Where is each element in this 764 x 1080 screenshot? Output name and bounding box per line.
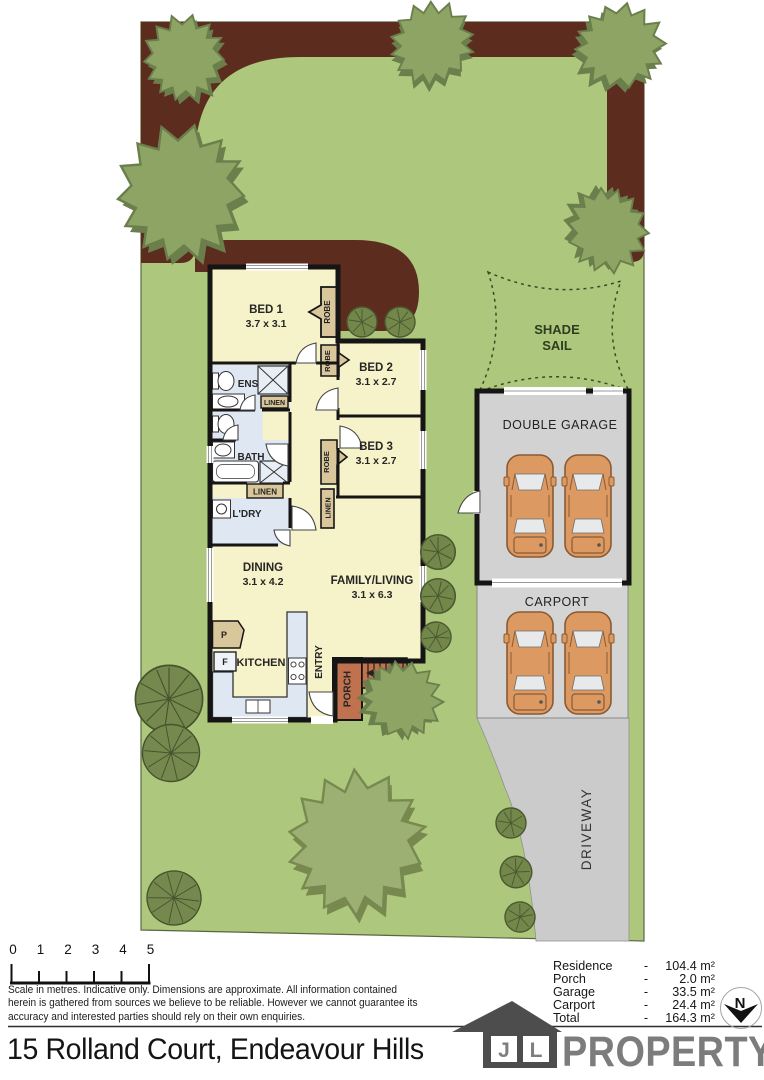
window (207, 446, 214, 463)
room-dims-family: 3.1 x 6.3 (352, 589, 393, 601)
front-door-gap (311, 716, 333, 724)
car-icon (504, 455, 556, 557)
car-icon (562, 612, 614, 714)
sink-icon (246, 700, 270, 713)
linen-label: LINEN (326, 498, 333, 519)
pantry-label: P (221, 630, 227, 640)
linen-laundry: LINEN (247, 484, 283, 498)
disclaimer-line: herein is gathered from sources we belie… (8, 997, 486, 1010)
basin-icon (213, 442, 235, 458)
room-label-porch: PORCH (343, 671, 354, 707)
bathtub-icon (213, 461, 259, 482)
room-dims-bed2: 3.1 x 2.7 (356, 376, 397, 388)
room-label-bed2: BED 2 (359, 362, 393, 374)
area-schedule: Residence - 104.4 m² Porch - 2.0 m² Gara… (553, 960, 715, 1025)
scale-tick-label: 2 (64, 942, 72, 957)
car-icon (504, 612, 556, 714)
disclaimer-line: Scale in metres. Indicative only. Dimens… (8, 984, 486, 997)
scale-tick-label: 0 (9, 942, 17, 957)
floorplan-page: SHADE SAIL DRIVEWAY CARPORT DOUBLE GARAG… (0, 0, 764, 1080)
room-dims-dining: 3.1 x 4.2 (243, 576, 284, 588)
room-label-kitchen: KITCHEN (237, 657, 286, 669)
site-plan-canvas: SHADE SAIL DRIVEWAY CARPORT DOUBLE GARAG… (0, 0, 764, 1080)
scale-bar: 0 1 2 3 4 5 (9, 942, 154, 983)
room-label-bath: BATH (237, 452, 264, 463)
room-label-family: FAMILY/LIVING (331, 575, 414, 587)
linen-label: LINEN (264, 400, 285, 407)
vanity-icon (213, 394, 245, 409)
pantry: P (213, 621, 245, 648)
linen-label: LINEN (253, 488, 277, 497)
garage-label: DOUBLE GARAGE (503, 418, 618, 432)
area-dash: - (639, 1012, 653, 1025)
logo-letter-l: L (530, 1039, 543, 1062)
shade-sail-label-line1: SHADE (534, 322, 580, 337)
scale-tick-label: 5 (147, 942, 155, 957)
disclaimer: Scale in metres. Indicative only. Dimens… (8, 984, 486, 1024)
logo-letter-j: J (498, 1039, 510, 1062)
robe-label: ROBE (322, 451, 331, 473)
room-label-ens: ENS (238, 379, 259, 390)
room-dims-bed1: 3.7 x 3.1 (246, 318, 287, 330)
round-tree-icon (135, 665, 202, 732)
scale-tick-label: 3 (92, 942, 100, 957)
linen-vertical: LINEN (321, 489, 334, 528)
toilet-icon (213, 372, 235, 391)
driveway-label: DRIVEWAY (579, 788, 594, 871)
shade-sail-label-line2: SAIL (542, 338, 572, 353)
fridge-label: F (222, 657, 228, 667)
shrub-icon (496, 808, 526, 838)
area-row: Total - 164.3 m² (553, 1012, 715, 1025)
shower-icon (258, 366, 288, 394)
robe-label: ROBE (323, 350, 332, 372)
area-value: 164.3 m² (653, 1012, 715, 1025)
scale-tick-label: 1 (37, 942, 45, 957)
room-label-entry: ENTRY (314, 645, 325, 679)
window (246, 264, 308, 271)
address-title: 15 Rolland Court, Endeavour Hills (7, 1033, 424, 1067)
fridge: F (214, 652, 236, 671)
area-label: Total (553, 1012, 639, 1025)
room-label-laundry: L'DRY (232, 509, 262, 520)
stove-icon (289, 658, 307, 684)
linen-ens: LINEN (261, 396, 288, 408)
room-label-dining: DINING (243, 562, 283, 574)
laundry-trough-icon (213, 500, 231, 518)
room-dims-bed3: 3.1 x 2.7 (356, 455, 397, 467)
disclaimer-line: accuracy and interested parties should r… (8, 1011, 486, 1024)
car-icon (562, 455, 614, 557)
logo-wordmark: PROPERTY (562, 1028, 764, 1077)
window (232, 717, 288, 724)
scale-tick-label: 4 (119, 942, 127, 957)
shrub-icon (347, 307, 377, 337)
room-label-bed3: BED 3 (359, 441, 393, 453)
window (207, 548, 214, 602)
robe-label: ROBE (323, 300, 332, 324)
carport-label: CARPORT (525, 595, 589, 609)
window (420, 431, 427, 469)
shrub-icon (421, 535, 456, 570)
north-arrow: N (721, 988, 762, 1029)
window (420, 350, 427, 390)
room-label-bed1: BED 1 (249, 304, 283, 316)
